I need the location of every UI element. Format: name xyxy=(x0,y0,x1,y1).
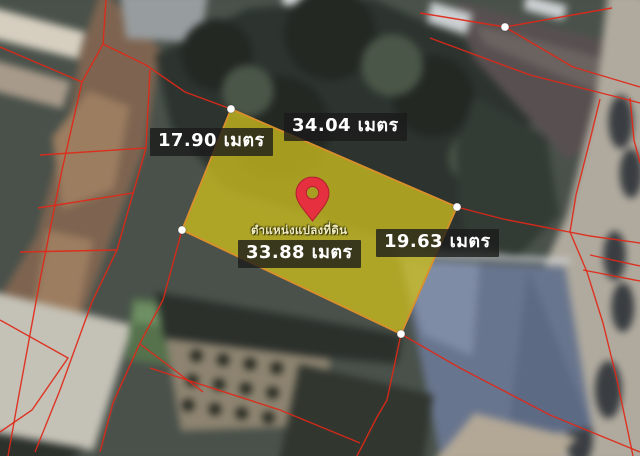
vertex-dot xyxy=(178,226,186,234)
measurement-label-left: 17.90 เมตร xyxy=(150,128,273,156)
vertex-dot xyxy=(453,203,461,211)
vertex-dot xyxy=(227,105,235,113)
location-pin-icon[interactable] xyxy=(295,176,330,222)
satellite-map: 17.90 เมตร 34.04 เมตร 19.63 เมตร 33.88 เ… xyxy=(0,0,640,456)
vertex-dot xyxy=(501,23,509,31)
measurement-label-top: 34.04 เมตร xyxy=(284,113,407,141)
measurement-label-bottom: 33.88 เมตร xyxy=(238,240,361,268)
measurement-label-right: 19.63 เมตร xyxy=(376,229,499,257)
pin-shape xyxy=(296,177,329,221)
plot-location-caption: ตำแหน่งแปลงที่ดิน xyxy=(251,222,347,240)
vertex-dot xyxy=(397,330,405,338)
